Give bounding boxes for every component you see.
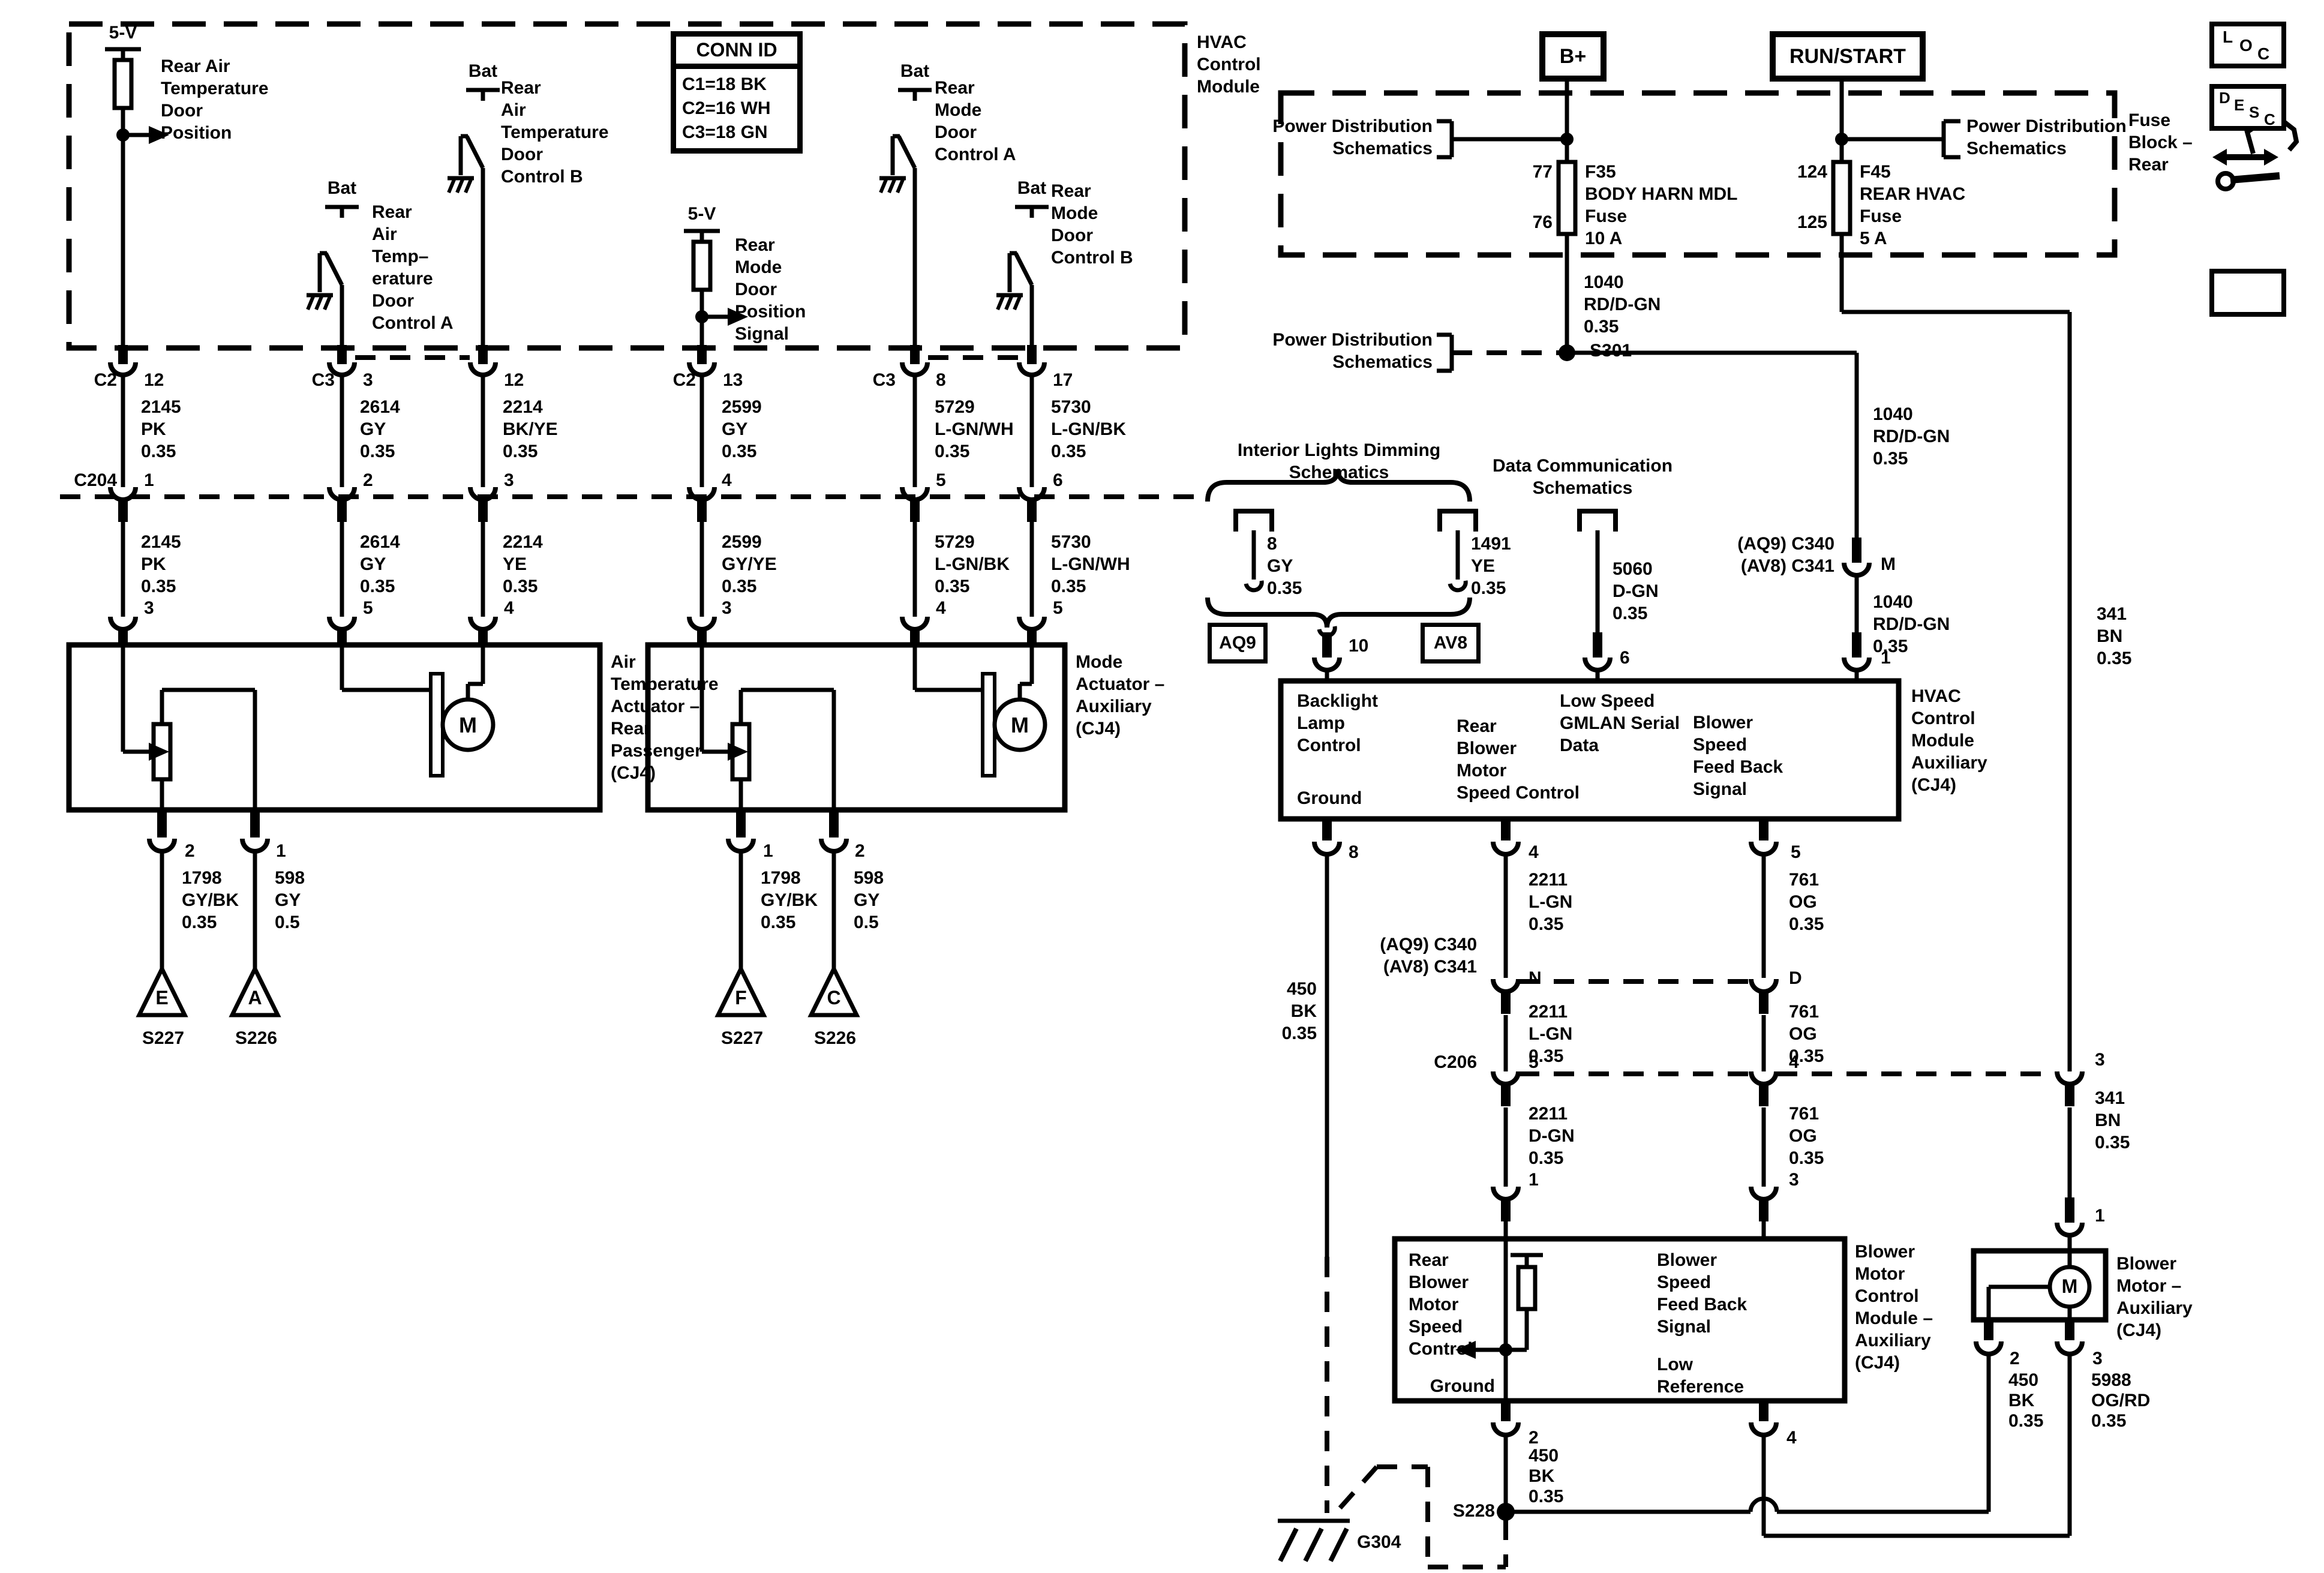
wire-label: 1491 YE 0.35 bbox=[1471, 533, 1511, 599]
desc-letter: D bbox=[2219, 89, 2230, 107]
hvac-aux-module-label: HVAC Control Module Auxiliary (CJ4) bbox=[1911, 685, 1987, 796]
pin-label: M bbox=[1881, 553, 1896, 575]
b-plus-terminal: B+ bbox=[1539, 31, 1607, 82]
desc-button[interactable]: D E S C bbox=[2209, 84, 2286, 131]
gmlan-serial-data-label: Low Speed GMLAN Serial Data bbox=[1560, 690, 1680, 757]
pin-label: 3 bbox=[144, 597, 154, 619]
wire-label: 2599 GY 0.35 bbox=[722, 396, 762, 463]
wire-label: 5988 OG/RD 0.35 bbox=[2091, 1370, 2150, 1431]
pin-label: 4 bbox=[504, 597, 514, 619]
loc-button[interactable]: L O C bbox=[2209, 22, 2286, 68]
pin-label: 5 bbox=[1529, 1051, 1539, 1073]
rear-air-temp-door-control-a-label: Rear Air Temp– erature Door Control A bbox=[372, 201, 454, 334]
pin-label: 5 bbox=[1791, 841, 1801, 863]
fuse-f45-label: F45 REAR HVAC Fuse 5 A bbox=[1860, 161, 1965, 250]
wire-label: 450 BK 0.35 bbox=[1282, 978, 1317, 1044]
wire-label: 598 GY 0.5 bbox=[854, 867, 884, 933]
splice-s228-label: S228 bbox=[1453, 1500, 1495, 1522]
pin-label: 3 bbox=[363, 369, 373, 391]
rear-mode-door-control-a-label: Rear Mode Door Control A bbox=[935, 77, 1016, 166]
conn-id-rows: C1=18 BK C2=16 WH C3=18 GN bbox=[676, 69, 797, 148]
pin-label: 2 bbox=[363, 469, 373, 491]
air-temp-actuator-label: Air Temperature Actuator – Rear Passenge… bbox=[611, 651, 719, 784]
rear-air-temp-door-control-b-label: Rear Air Temperature Door Control B bbox=[501, 77, 609, 188]
fuse-pin-label: 125 bbox=[1797, 211, 1827, 233]
wire-label: 2211 D-GN 0.35 bbox=[1529, 1103, 1575, 1169]
fuse-pin-label: 124 bbox=[1797, 161, 1827, 183]
ground-g304-label: G304 bbox=[1357, 1531, 1401, 1553]
splice-letter: A bbox=[240, 987, 270, 1009]
blower-motor-control-module-label: Blower Motor Control Module – Auxiliary … bbox=[1855, 1241, 1933, 1374]
rpo-av8-tag: AV8 bbox=[1421, 623, 1481, 664]
pin-label: 2 bbox=[855, 840, 865, 862]
power-distribution-ref: Power Distribution Schematics bbox=[1966, 115, 2127, 160]
blower-feedback-label: Blower Speed Feed Back Signal bbox=[1693, 712, 1783, 800]
pin-label: 1 bbox=[1881, 647, 1891, 669]
wire-label: 5730 L-GN/BK 0.35 bbox=[1051, 396, 1126, 463]
blower-motor-label: Blower Motor – Auxiliary (CJ4) bbox=[2116, 1253, 2193, 1341]
wire-label: 2214 BK/YE 0.35 bbox=[503, 396, 558, 463]
motor-icon: M bbox=[450, 713, 486, 738]
supply-5v-label: 5-V bbox=[666, 203, 738, 225]
wire-label: 8 GY 0.35 bbox=[1267, 533, 1302, 599]
pin-label: 4 bbox=[722, 469, 732, 491]
wire-label: 2599 GY/YE 0.35 bbox=[722, 531, 777, 598]
connector-c3-label: C3 bbox=[873, 369, 896, 391]
wire-label: 761 OG 0.35 bbox=[1789, 869, 1824, 935]
rear-mode-door-control-b-label: Rear Mode Door Control B bbox=[1051, 180, 1133, 269]
fuse-pin-label: 77 bbox=[1533, 161, 1553, 183]
hvac-control-module-label: HVAC Control Module bbox=[1197, 31, 1261, 98]
low-reference-label: Low Reference bbox=[1657, 1353, 1744, 1398]
pin-label: 8 bbox=[1349, 841, 1359, 863]
rear-air-temp-door-position-label: Rear Air Temperature Door Position bbox=[161, 55, 269, 144]
pin-label: 4 bbox=[1786, 1427, 1797, 1449]
pin-label: 1 bbox=[1529, 1169, 1539, 1191]
wire-label: 1040 RD/D-GN 0.35 bbox=[1873, 403, 1950, 470]
pin-label: 6 bbox=[1620, 647, 1630, 669]
ground-label: Ground bbox=[1297, 787, 1362, 809]
pin-label: 4 bbox=[936, 597, 946, 619]
wire-label: 450 BK 0.35 bbox=[1529, 1446, 1563, 1507]
pin-label: D bbox=[1789, 967, 1802, 989]
wire-label: 761 OG 0.35 bbox=[1789, 1103, 1824, 1169]
connector-c3-label: C3 bbox=[312, 369, 335, 391]
pin-label: 4 bbox=[1529, 841, 1539, 863]
wire-label: 5729 L-GN/BK 0.35 bbox=[935, 531, 1010, 598]
mode-actuator-label: Mode Actuator – Auxiliary (CJ4) bbox=[1076, 651, 1164, 740]
motor-icon: M bbox=[2052, 1275, 2088, 1298]
pin-label: 10 bbox=[1349, 635, 1368, 657]
pin-label: 12 bbox=[504, 369, 524, 391]
blower-feedback-label: Blower Speed Feed Back Signal bbox=[1657, 1249, 1747, 1338]
pin-label: N bbox=[1529, 967, 1542, 989]
conn-id-table: CONN ID C1=18 BK C2=16 WH C3=18 GN bbox=[671, 31, 803, 154]
pin-label: 1 bbox=[144, 469, 154, 491]
wire-label: 1798 GY/BK 0.35 bbox=[182, 867, 239, 933]
wire-label: 341 BN 0.35 bbox=[2095, 1087, 2130, 1154]
rpo-aq9-tag: AQ9 bbox=[1208, 623, 1268, 664]
supply-5v-label: 5-V bbox=[87, 22, 159, 44]
connector-c204-label: C204 bbox=[74, 469, 117, 491]
bat-label: Bat bbox=[306, 177, 378, 199]
fuse-block-rear-label: Fuse Block – Rear bbox=[2128, 109, 2193, 176]
desc-letter: C bbox=[2264, 110, 2275, 129]
splice-s226-label: S226 bbox=[214, 1027, 298, 1049]
pin-label: 3 bbox=[1789, 1169, 1799, 1191]
power-distribution-ref: Power Distribution Schematics bbox=[1272, 115, 1433, 160]
pin-label: 5 bbox=[936, 469, 946, 491]
connector-c340-c341-label: (AQ9) C340 (AV8) C341 bbox=[1737, 533, 1834, 577]
splice-letter: F bbox=[726, 987, 756, 1009]
pin-label: 13 bbox=[723, 369, 743, 391]
splice-letter: C bbox=[819, 987, 849, 1009]
backlight-lamp-control-label: Backlight Lamp Control bbox=[1297, 690, 1378, 757]
splice-s226-label: S226 bbox=[793, 1027, 877, 1049]
wire-label: 5729 L-GN/WH 0.35 bbox=[935, 396, 1014, 463]
pin-label: 2 bbox=[185, 840, 195, 862]
splice-s301-label: S301 bbox=[1590, 340, 1632, 362]
desc-letter: S bbox=[2249, 103, 2259, 122]
pin-label: 5 bbox=[363, 597, 373, 619]
pin-label: 8 bbox=[936, 369, 946, 391]
splice-s227-label: S227 bbox=[700, 1027, 784, 1049]
connector-c2-label: C2 bbox=[94, 369, 117, 391]
pin-label: 17 bbox=[1053, 369, 1073, 391]
fuse-pin-label: 76 bbox=[1533, 211, 1553, 233]
wire-label: 2145 PK 0.35 bbox=[141, 396, 181, 463]
rear-mode-door-position-signal-label: Rear Mode Door Position Signal bbox=[735, 234, 806, 345]
wire-label: 2614 GY 0.35 bbox=[360, 396, 400, 463]
wiring-diagram-page: 5-V Rear Air Temperature Door Position B… bbox=[0, 0, 2324, 1573]
wire-label: 450 BK 0.35 bbox=[2008, 1370, 2043, 1431]
connector-c206-label: C206 bbox=[1434, 1051, 1477, 1073]
wire-label: 1798 GY/BK 0.35 bbox=[761, 867, 818, 933]
motor-icon: M bbox=[1002, 713, 1038, 738]
pin-label: 2 bbox=[2010, 1347, 2020, 1370]
pin-label: 1 bbox=[763, 840, 773, 862]
connector-c2-label: C2 bbox=[673, 369, 696, 391]
wire-label: 5060 D-GN 0.35 bbox=[1613, 558, 1659, 625]
back-button[interactable] bbox=[2209, 269, 2286, 317]
wire-label: 598 GY 0.5 bbox=[275, 867, 305, 933]
pin-label: 3 bbox=[2095, 1049, 2105, 1071]
rear-blower-speed-control-label: Rear Blower Motor Speed Control bbox=[1409, 1249, 1473, 1360]
wire-label: 2145 PK 0.35 bbox=[141, 531, 181, 598]
pin-label: 6 bbox=[1053, 469, 1063, 491]
pin-label: 12 bbox=[144, 369, 164, 391]
connector-c340-c341-label: (AQ9) C340 (AV8) C341 bbox=[1380, 933, 1477, 978]
interior-lights-dimming-ref: Interior Lights Dimming Schematics bbox=[1183, 439, 1495, 484]
pin-label: 1 bbox=[276, 840, 286, 862]
pin-label: 1 bbox=[2095, 1205, 2105, 1227]
run-start-terminal: RUN/START bbox=[1770, 31, 1926, 82]
conn-id-title: CONN ID bbox=[676, 37, 797, 69]
desc-letter: E bbox=[2234, 96, 2244, 115]
splice-letter: E bbox=[147, 987, 177, 1009]
wire-label: 341 BN 0.35 bbox=[2097, 603, 2131, 670]
pin-label: 5 bbox=[1053, 597, 1063, 619]
splice-s227-label: S227 bbox=[121, 1027, 205, 1049]
wire-label: 2214 YE 0.35 bbox=[503, 531, 543, 598]
loc-letter: L bbox=[2223, 28, 2233, 47]
pin-label: 3 bbox=[504, 469, 514, 491]
loc-letter: O bbox=[2239, 36, 2253, 55]
power-distribution-ref: Power Distribution Schematics bbox=[1272, 329, 1433, 373]
wire-label: 2614 GY 0.35 bbox=[360, 531, 400, 598]
pin-label: 4 bbox=[1789, 1051, 1799, 1073]
data-communication-ref: Data Communication Schematics bbox=[1457, 455, 1709, 499]
ground-label: Ground bbox=[1430, 1375, 1495, 1397]
loc-letter: C bbox=[2257, 44, 2269, 64]
pin-label: 3 bbox=[722, 597, 732, 619]
wire-label: 2211 L-GN 0.35 bbox=[1529, 869, 1572, 935]
wire-label: 5730 L-GN/WH 0.35 bbox=[1051, 531, 1130, 598]
fuse-f35-label: F35 BODY HARN MDL Fuse 10 A bbox=[1585, 161, 1737, 250]
wire-label: 1040 RD/D-GN 0.35 bbox=[1584, 271, 1661, 338]
pin-label: 3 bbox=[2092, 1347, 2103, 1370]
